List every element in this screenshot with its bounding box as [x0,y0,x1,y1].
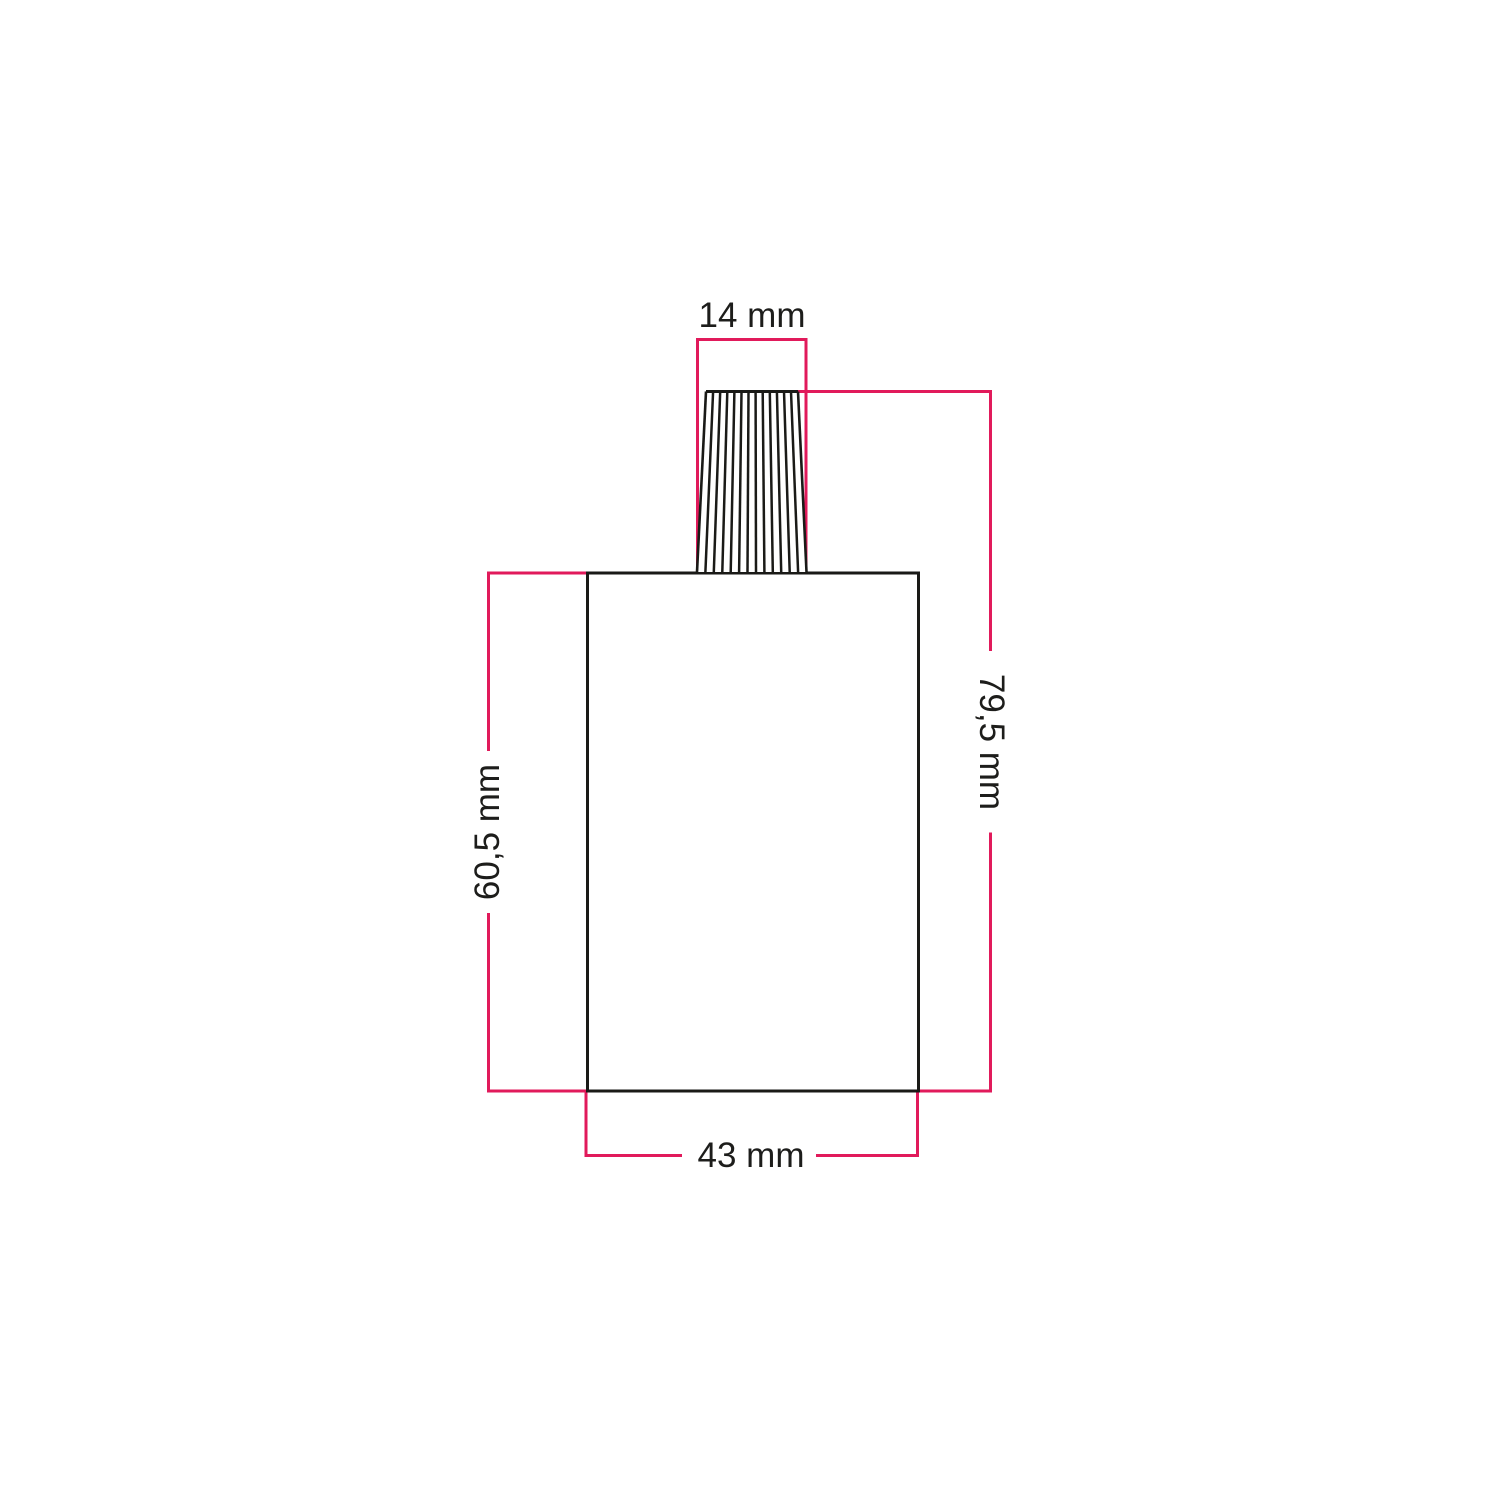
svg-text:60,5 mm: 60,5 mm [468,764,507,900]
svg-text:79,5 mm: 79,5 mm [972,674,1011,810]
svg-text:14 mm: 14 mm [699,296,806,335]
svg-text:43 mm: 43 mm [698,1136,805,1175]
